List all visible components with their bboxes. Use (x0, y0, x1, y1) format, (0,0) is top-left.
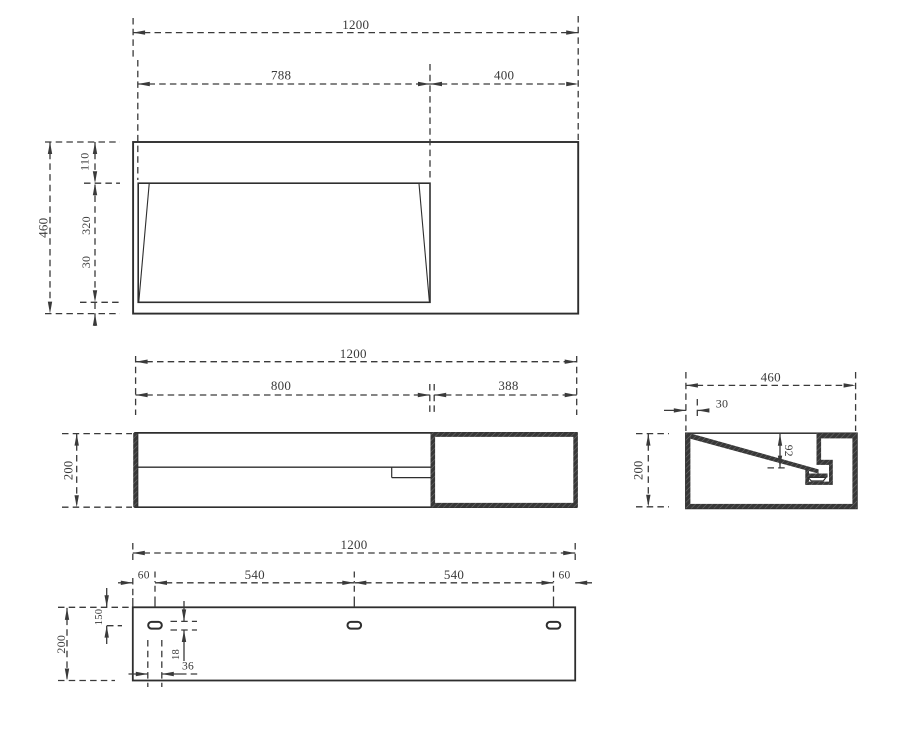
svg-text:1200: 1200 (342, 17, 369, 32)
svg-text:1200: 1200 (341, 537, 368, 552)
svg-text:150: 150 (94, 609, 105, 626)
svg-text:200: 200 (631, 460, 645, 480)
svg-text:92: 92 (782, 445, 794, 457)
svg-text:788: 788 (271, 67, 291, 82)
svg-text:200: 200 (61, 461, 75, 481)
svg-text:60: 60 (138, 570, 150, 582)
svg-text:460: 460 (761, 370, 781, 385)
svg-text:400: 400 (494, 67, 514, 82)
svg-text:540: 540 (245, 567, 265, 582)
svg-text:30: 30 (716, 396, 729, 410)
svg-text:110: 110 (78, 153, 92, 171)
svg-text:18: 18 (171, 649, 182, 660)
svg-text:320: 320 (79, 216, 93, 235)
svg-text:540: 540 (444, 567, 464, 582)
svg-text:60: 60 (559, 570, 571, 582)
svg-text:460: 460 (35, 218, 50, 238)
svg-text:36: 36 (182, 661, 194, 673)
svg-text:1200: 1200 (340, 346, 367, 361)
svg-text:800: 800 (271, 378, 291, 393)
svg-text:388: 388 (498, 378, 518, 393)
svg-text:200: 200 (54, 635, 68, 654)
svg-text:30: 30 (79, 256, 93, 269)
